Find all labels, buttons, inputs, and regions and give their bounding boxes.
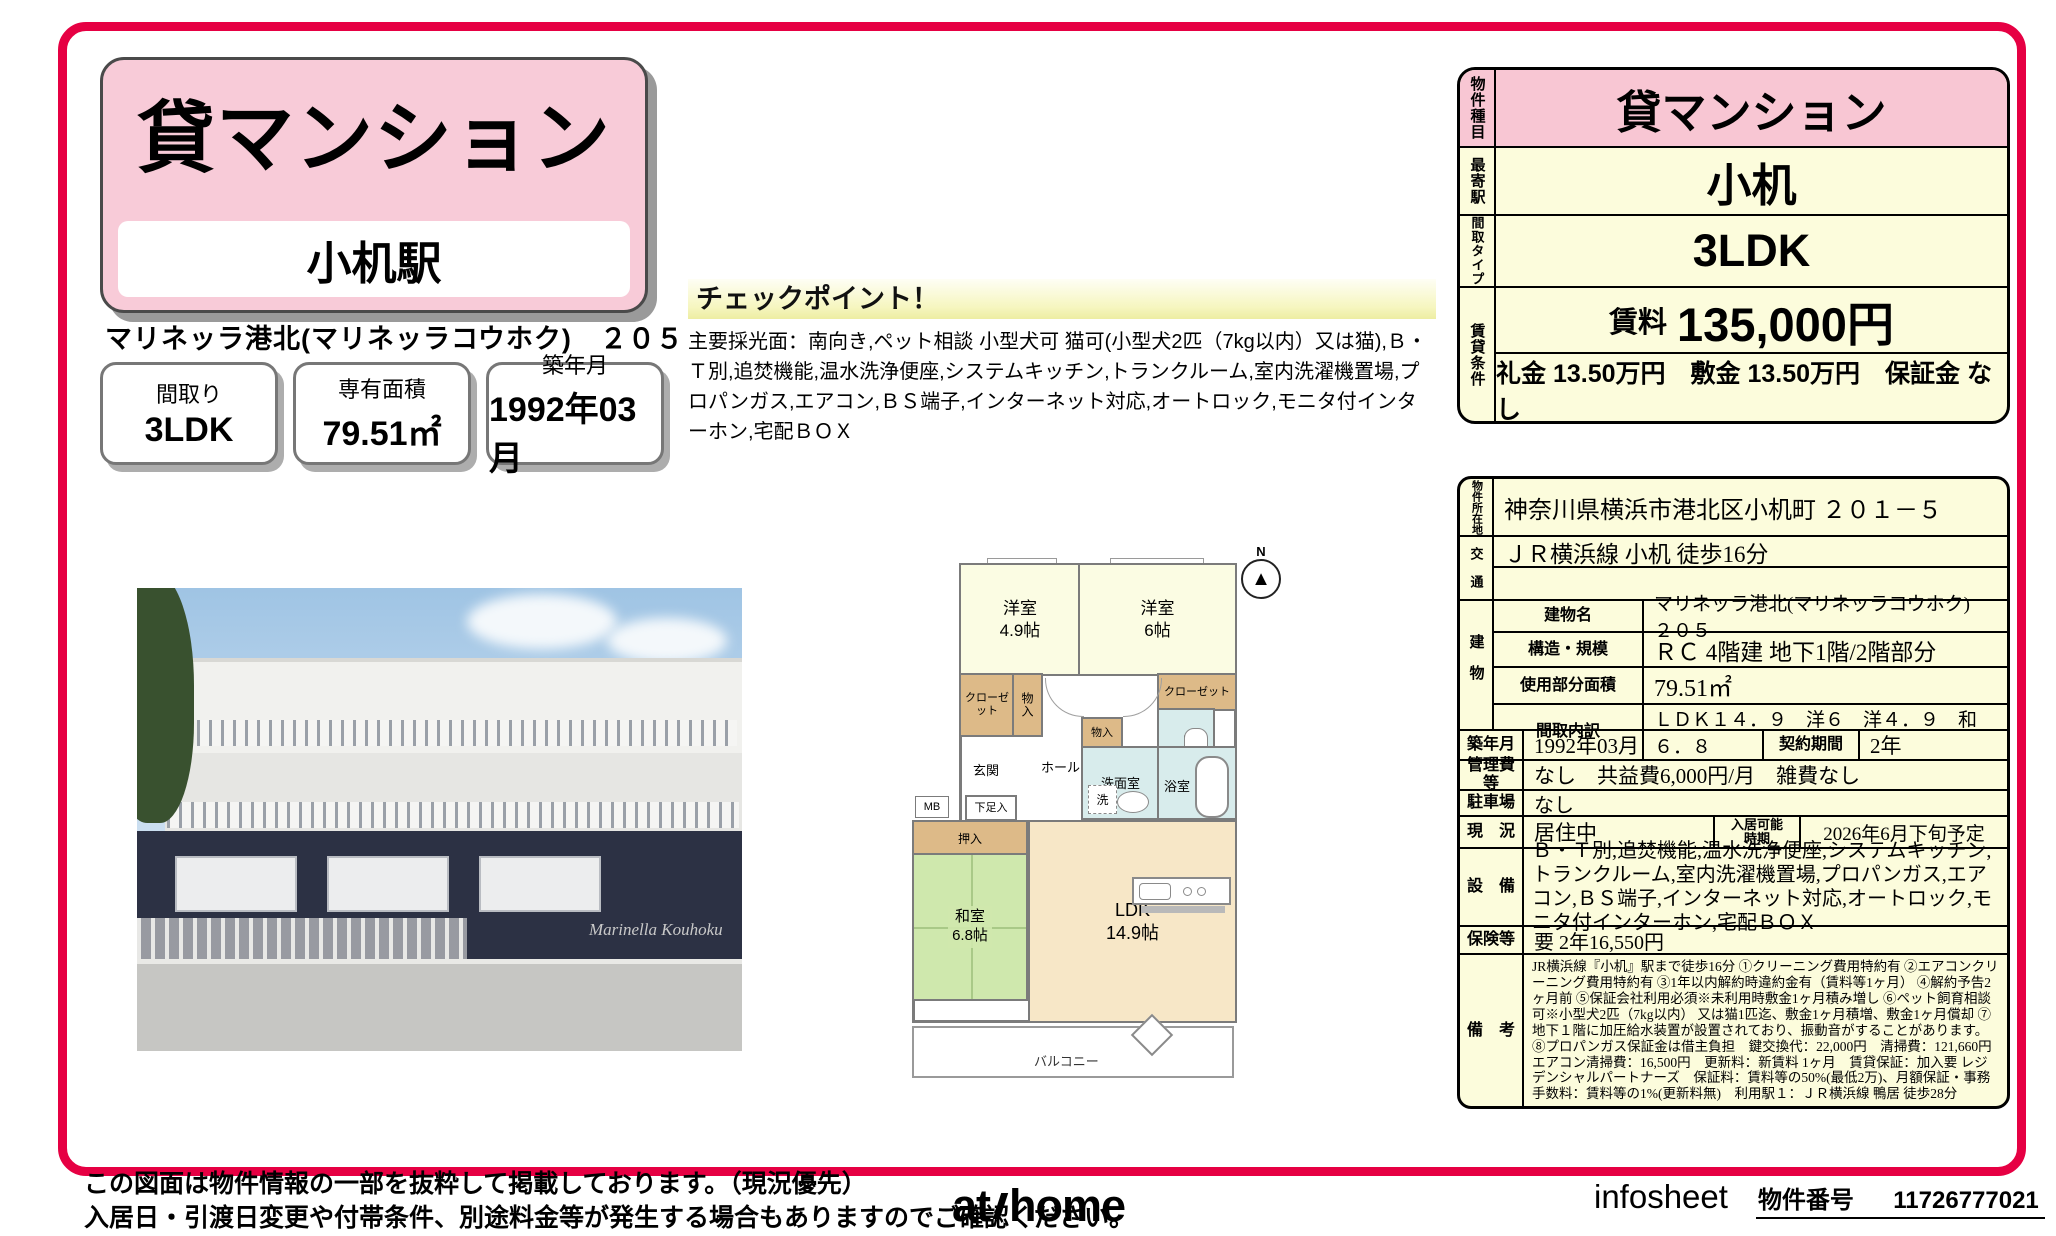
tree-shape — [137, 588, 194, 823]
table-row: 物件種目 貸マンション — [1460, 70, 2007, 148]
address-value: 神奈川県横浜市港北区小机町 ２０１－５ — [1494, 479, 2007, 535]
table-row: 管理費等 なし 共益費6,000円/月 雑費なし — [1460, 761, 2007, 791]
checkpoint-body: 主要採光面：南向き,ペット相談 小型犬可 猫可(小型犬2匹（7kg以内）又は猫)… — [688, 327, 1433, 447]
room-size: 14.9帖 — [1106, 923, 1159, 943]
property-type-value: 貸マンション — [1616, 76, 1886, 141]
storage2: 物入 — [1081, 717, 1123, 749]
stat-label: 築年月 — [542, 348, 608, 380]
bathtub-icon — [1195, 756, 1229, 818]
logo-tick-icon — [993, 1193, 1008, 1219]
sub-value: マリネッラ港北(マリネッラコウホク) ２０５ — [1644, 601, 2007, 631]
row-label: 現 況 — [1460, 817, 1524, 847]
row-label: 建物 — [1469, 634, 1484, 696]
kitchen-counter — [1132, 877, 1231, 905]
room-label: クローゼット — [961, 692, 1013, 717]
table-row: 建物 建物名 マリネッラ港北(マリネッラコウホク) ２０５ 構造・規模 ＲＣ 4… — [1460, 601, 2007, 731]
building-row: 建物名 マリネッラ港北(マリネッラコウホク) ２０５ — [1494, 601, 2007, 633]
footer-right: infosheet 物件番号 11726777021 — [1594, 1178, 2045, 1219]
table-row: 賃貸条件 賃料 135,000円 礼金 13.50万円 敷金 13.50万円 保… — [1460, 288, 2007, 421]
row-label: 管理費等 — [1460, 761, 1524, 789]
stat-value: 1992年03月 — [489, 382, 661, 480]
row-label: 備 考 — [1460, 955, 1524, 1106]
washroom: 洗面室 洗 — [1081, 746, 1160, 820]
station-name-box: 小机駅 — [118, 221, 630, 297]
row-label-cell: 建物 — [1460, 601, 1494, 729]
equipment-value: Ｂ・Ｔ別,追焚機能,温水洗浄便座,システムキッチン,トランクルーム,室内洗濯機置… — [1524, 849, 2007, 925]
stat-label: 間取り — [156, 377, 222, 409]
room-label: 物入 — [1091, 727, 1113, 740]
front-fence — [137, 918, 467, 964]
parking-value: なし — [1524, 791, 2007, 815]
sub-value: 79.51㎡ — [1644, 668, 2007, 703]
row-label-cell: 賃貸条件 — [1460, 288, 1496, 421]
row-label-cell: 最寄駅 — [1460, 148, 1496, 214]
table-row: 設 備 Ｂ・Ｔ別,追焚機能,温水洗浄便座,システムキッチン,トランクルーム,室内… — [1460, 849, 2007, 927]
row-label-cell: 物件種目 — [1460, 70, 1496, 146]
table-row: 最寄駅 小机 — [1460, 148, 2007, 216]
insurance-value: 要 2年16,550円 — [1524, 927, 2007, 953]
rent-value: 135,000円 — [1677, 286, 1894, 355]
stat-box-area: 専有面積 79.51㎡ — [293, 362, 471, 465]
stat-box-layout: 間取り 3LDK — [100, 362, 278, 465]
table-row: 保険等 要 2年16,550円 — [1460, 927, 2007, 955]
room-label: MB — [924, 801, 941, 814]
detail-table: 物件所在地 神奈川県横浜市港北区小机町 ２０１－５ 交 通 ＪＲ横浜線 小机 徒… — [1457, 476, 2010, 1109]
row-label: 最寄駅 — [1470, 157, 1485, 205]
property-category-title: 貸マンション — [103, 76, 645, 188]
stat-box-built: 築年月 1992年03月 — [486, 362, 664, 465]
table-row: 物件所在地 神奈川県横浜市港北区小机町 ２０１－５ — [1460, 479, 2007, 537]
washer-pan-icon: 洗 — [1088, 785, 1117, 814]
row-value-cell: 小机 — [1496, 148, 2007, 214]
sub-label: 使用部分面積 — [1494, 668, 1644, 703]
building-row: 構造・規模 ＲＣ 4階建 地下1階/2階部分 — [1494, 633, 2007, 668]
room-label: 押入 — [958, 830, 982, 847]
built-value: 1992年03月 — [1524, 731, 1764, 759]
stat-label: 専有面積 — [338, 372, 426, 404]
row-label: 保険等 — [1460, 927, 1524, 953]
building-name-caption: Marinella Kouhoku — [589, 920, 723, 940]
rent-label: 賃料 — [1609, 299, 1667, 341]
balcony-label: バルコニー — [1034, 1051, 1099, 1070]
row-label: 物件種目 — [1470, 76, 1485, 140]
room-label: 浴室 — [1164, 776, 1190, 795]
hall-label: ホール — [1041, 757, 1080, 776]
floor-plan: 洋室 4.9帖 洋室 6帖 クローゼット 物入 クローゼット トイレ 物入 洗面… — [895, 545, 1307, 1110]
athome-logo: at home — [952, 1180, 1125, 1232]
balcony: バルコニー — [912, 1026, 1234, 1078]
station-value: 小机 — [1706, 149, 1796, 214]
room-label: 洋室 — [1141, 599, 1175, 618]
closet-right: クローゼット — [1157, 673, 1237, 711]
row-value-cell: 貸マンション — [1496, 70, 2007, 146]
row-label-cell: 交 通 — [1460, 537, 1494, 599]
cloud-shape — [467, 594, 617, 649]
room-japanese: 和室 6.8帖 — [912, 853, 1028, 1001]
row-value-cell: 3LDK — [1496, 216, 2007, 286]
row-label: 賃貸条件 — [1470, 323, 1485, 387]
bathroom: 浴室 — [1157, 746, 1237, 820]
sub-value: ＲＣ 4階建 地下1階/2階部分 — [1644, 633, 2007, 666]
room-label: クローゼット — [1164, 686, 1230, 699]
room-ldk: LDK 14.9帖 — [1028, 820, 1237, 1023]
remarks-value: JR横浜線『小机』駅まで徒歩16分 ①クリーニング費用特約有 ②エアコンクリーニ… — [1524, 955, 2007, 1106]
shoe-box: 下足入 — [965, 795, 1017, 821]
compass-arrow: ▲ — [1251, 568, 1271, 591]
row-label: 物件所在地 — [1471, 480, 1482, 535]
access-line1: ＪＲ横浜線 小机 徒歩16分 — [1494, 537, 2007, 568]
row-label: 間取タイプ — [1471, 216, 1484, 286]
meter-box: MB — [915, 796, 949, 818]
storage1: 物入 — [1012, 673, 1043, 737]
table-row: 駐車場 なし — [1460, 791, 2007, 817]
building-rows: 建物名 マリネッラ港北(マリネッラコウホク) ２０５ 構造・規模 ＲＣ 4階建 … — [1494, 601, 2007, 729]
room-size: 6.8帖 — [952, 927, 988, 944]
oshiire: 押入 — [912, 820, 1028, 856]
sink-icon — [1117, 791, 1149, 813]
compass-icon: ▲ — [1241, 559, 1281, 599]
room-label: 下足入 — [975, 802, 1008, 815]
sub-label: 構造・規模 — [1494, 633, 1644, 666]
sub-label: 建物名 — [1494, 601, 1644, 631]
balcony-railing — [167, 802, 739, 828]
fees-value: なし 共益費6,000円/月 雑費なし — [1524, 761, 2007, 789]
property-number: 物件番号 11726777021 — [1756, 1180, 2045, 1219]
deposit-cell: 礼金 13.50万円 敷金 13.50万円 保証金 なし — [1496, 354, 2007, 424]
entrance-label: 玄関 — [973, 760, 999, 779]
closet-left: クローゼット — [959, 673, 1015, 737]
room-size: 4.9帖 — [1000, 621, 1041, 640]
room-western2: 洋室 6帖 — [1078, 563, 1237, 676]
terms-cells: 賃料 135,000円 礼金 13.50万円 敷金 13.50万円 保証金 なし — [1496, 288, 2007, 421]
property-number-value: 11726777021 — [1893, 1187, 2039, 1214]
property-number-label: 物件番号 — [1758, 1187, 1854, 1214]
row-label: 築年月 — [1460, 731, 1524, 759]
room-label: 洋室 — [1003, 599, 1037, 618]
table-row: 間取タイプ 3LDK — [1460, 216, 2007, 288]
washer-label: 洗 — [1096, 791, 1108, 808]
rent-cell: 賃料 135,000円 — [1496, 288, 2007, 354]
balcony-railing — [197, 720, 737, 746]
balcony-box — [327, 856, 449, 912]
table-row: 備 考 JR横浜線『小机』駅まで徒歩16分 ①クリーニング費用特約有 ②エアコン… — [1460, 955, 2007, 1106]
room-label: 物入 — [1019, 692, 1036, 718]
title-card: 貸マンション 小机駅 — [100, 57, 648, 313]
logo-text-at: at — [952, 1180, 990, 1232]
kitchen-sink-icon — [1139, 883, 1171, 900]
stat-value: 79.51㎡ — [322, 406, 441, 455]
room-western1: 洋室 4.9帖 — [959, 563, 1081, 676]
row-label-cell: 物件所在地 — [1460, 479, 1494, 535]
room-size: 6帖 — [1144, 621, 1170, 640]
room-label: 和室 — [955, 908, 985, 925]
layout-value: 3LDK — [1693, 225, 1811, 277]
row-label: 交 通 — [1470, 547, 1483, 589]
counter-bar — [1141, 906, 1225, 913]
row-label: 駐車場 — [1460, 791, 1524, 815]
stat-value: 3LDK — [145, 411, 234, 450]
contract-value: 2年 — [1860, 731, 2007, 759]
deposit-values: 礼金 13.50万円 敷金 13.50万円 保証金 なし — [1496, 354, 2007, 424]
compass: N ▲ — [1239, 545, 1283, 599]
summary-table: 物件種目 貸マンション 最寄駅 小机 間取タイプ 3LDK 賃貸条件 賃料 13… — [1457, 67, 2010, 424]
cloud-shape — [607, 618, 727, 663]
row-label-cell: 間取タイプ — [1460, 216, 1496, 286]
property-photo: Marinella Kouhoku — [137, 588, 742, 1051]
checkpoint-heading: チェックポイント！ — [688, 279, 1436, 319]
infosheet-label: infosheet — [1594, 1178, 1728, 1216]
stove-burner-icon — [1183, 887, 1192, 896]
building-row: 使用部分面積 79.51㎡ — [1494, 668, 2007, 705]
balcony-box — [479, 856, 601, 912]
logo-text-home: home — [1009, 1180, 1125, 1232]
balcony-box — [175, 856, 297, 912]
stat-boxes: 間取り 3LDK 専有面積 79.51㎡ 築年月 1992年03月 — [100, 362, 664, 465]
compass-n-label: N — [1239, 545, 1283, 558]
table-row: 築年月 1992年03月 契約期間 2年 — [1460, 731, 2007, 761]
stove-burner-icon — [1197, 887, 1206, 896]
row-label: 設 備 — [1460, 849, 1524, 925]
front-wall — [137, 959, 742, 1051]
contract-label: 契約期間 — [1764, 731, 1860, 759]
